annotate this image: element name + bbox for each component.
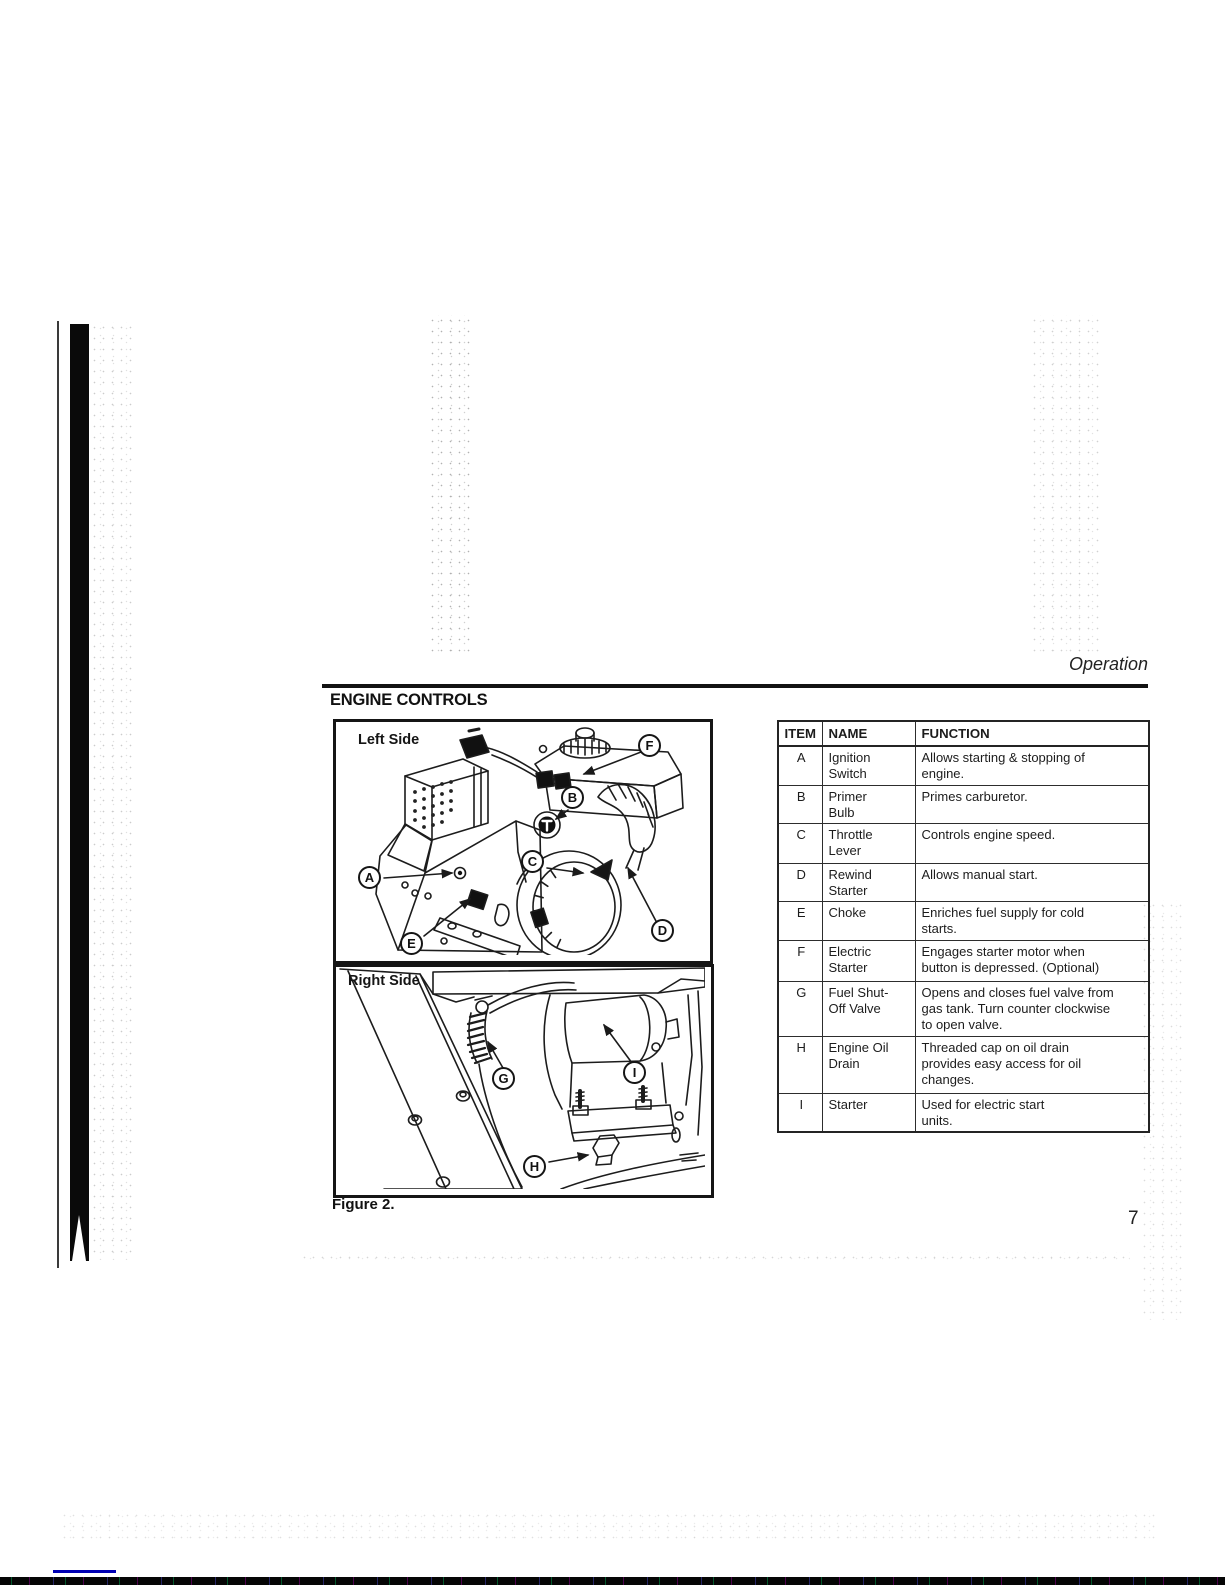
name-cell: Ignition Switch xyxy=(822,746,915,785)
table-row: G Fuel Shut- Off Valve Opens and closes … xyxy=(778,981,1149,1036)
table-row: A Ignition Switch Allows starting & stop… xyxy=(778,746,1149,785)
callout-d: D xyxy=(651,919,674,942)
callout-b: B xyxy=(561,786,584,809)
name-cell: Primer Bulb xyxy=(822,785,915,823)
name-cell: Fuel Shut- Off Valve xyxy=(822,981,915,1036)
item-cell: G xyxy=(778,981,822,1036)
function-cell: Used for electric start units. xyxy=(915,1093,1149,1132)
running-header: Operation xyxy=(1020,654,1148,675)
table-row: I Starter Used for electric start units. xyxy=(778,1093,1149,1132)
table-row: H Engine Oil Drain Threaded cap on oil d… xyxy=(778,1036,1149,1093)
engine-controls-table: ITEM NAME FUNCTION A Ignition Switch All… xyxy=(777,720,1150,1133)
col-header-item: ITEM xyxy=(778,721,822,746)
callout-i: I xyxy=(623,1061,646,1084)
binding-bar xyxy=(70,324,89,1261)
function-cell: Controls engine speed. xyxy=(915,823,1149,863)
table-row: E Choke Enriches fuel supply for cold st… xyxy=(778,901,1149,940)
item-cell: F xyxy=(778,940,822,981)
callout-f: F xyxy=(638,734,661,757)
scan-noise xyxy=(90,322,138,1260)
function-cell: Opens and closes fuel valve from gas tan… xyxy=(915,981,1149,1036)
page-number: 7 xyxy=(1128,1208,1139,1230)
table-row: F Electric Starter Engages starter motor… xyxy=(778,940,1149,981)
item-cell: C xyxy=(778,823,822,863)
callout-e: E xyxy=(400,932,423,955)
callout-h: H xyxy=(523,1155,546,1178)
function-cell: Primes carburetor. xyxy=(915,785,1149,823)
scan-edge-bar xyxy=(0,1577,1225,1585)
figure-right-label: Right Side xyxy=(348,973,420,989)
name-cell: Choke xyxy=(822,901,915,940)
name-cell: Starter xyxy=(822,1093,915,1132)
section-title: ENGINE CONTROLS xyxy=(330,691,487,710)
col-header-function: FUNCTION xyxy=(915,721,1149,746)
table-row: B Primer Bulb Primes carburetor. xyxy=(778,785,1149,823)
item-cell: B xyxy=(778,785,822,823)
function-cell: Threaded cap on oil drain provides easy … xyxy=(915,1036,1149,1093)
name-cell: Engine Oil Drain xyxy=(822,1036,915,1093)
scan-noise xyxy=(428,315,470,655)
function-cell: Allows starting & stopping of engine. xyxy=(915,746,1149,785)
name-cell: Rewind Starter xyxy=(822,863,915,901)
item-cell: H xyxy=(778,1036,822,1093)
scan-noise xyxy=(60,1510,1160,1540)
callout-a: A xyxy=(358,866,381,889)
scan-noise xyxy=(1030,315,1100,655)
manual-page: Operation ENGINE CONTROLS xyxy=(0,0,1225,1585)
item-cell: I xyxy=(778,1093,822,1132)
figure-left-side: Left Side A B C D E F xyxy=(333,719,713,964)
table-header-row: ITEM NAME FUNCTION xyxy=(778,721,1149,746)
figure-left-label: Left Side xyxy=(358,732,419,748)
scan-noise xyxy=(300,1252,1130,1262)
figure-caption: Figure 2. xyxy=(332,1196,395,1213)
callout-g: G xyxy=(492,1067,515,1090)
item-cell: A xyxy=(778,746,822,785)
name-cell: Throttle Lever xyxy=(822,823,915,863)
col-header-name: NAME xyxy=(822,721,915,746)
callout-c: C xyxy=(521,850,544,873)
item-cell: E xyxy=(778,901,822,940)
scan-blue-mark xyxy=(53,1570,116,1573)
function-cell: Engages starter motor when button is dep… xyxy=(915,940,1149,981)
header-rule xyxy=(322,684,1148,688)
table-row: D Rewind Starter Allows manual start. xyxy=(778,863,1149,901)
function-cell: Allows manual start. xyxy=(915,863,1149,901)
figure-right-side: Right Side G H I xyxy=(333,964,714,1198)
table-row: C Throttle Lever Controls engine speed. xyxy=(778,823,1149,863)
binding-line xyxy=(57,321,59,1268)
name-cell: Electric Starter xyxy=(822,940,915,981)
function-cell: Enriches fuel supply for cold starts. xyxy=(915,901,1149,940)
engine-right-illustration xyxy=(336,967,705,1189)
item-cell: D xyxy=(778,863,822,901)
